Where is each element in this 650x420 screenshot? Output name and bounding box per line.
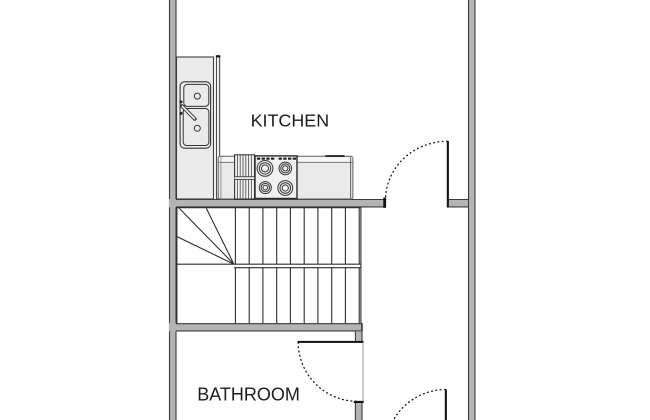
svg-text:KITCHEN: KITCHEN xyxy=(251,111,330,131)
svg-text:BATHROOM: BATHROOM xyxy=(197,384,300,404)
